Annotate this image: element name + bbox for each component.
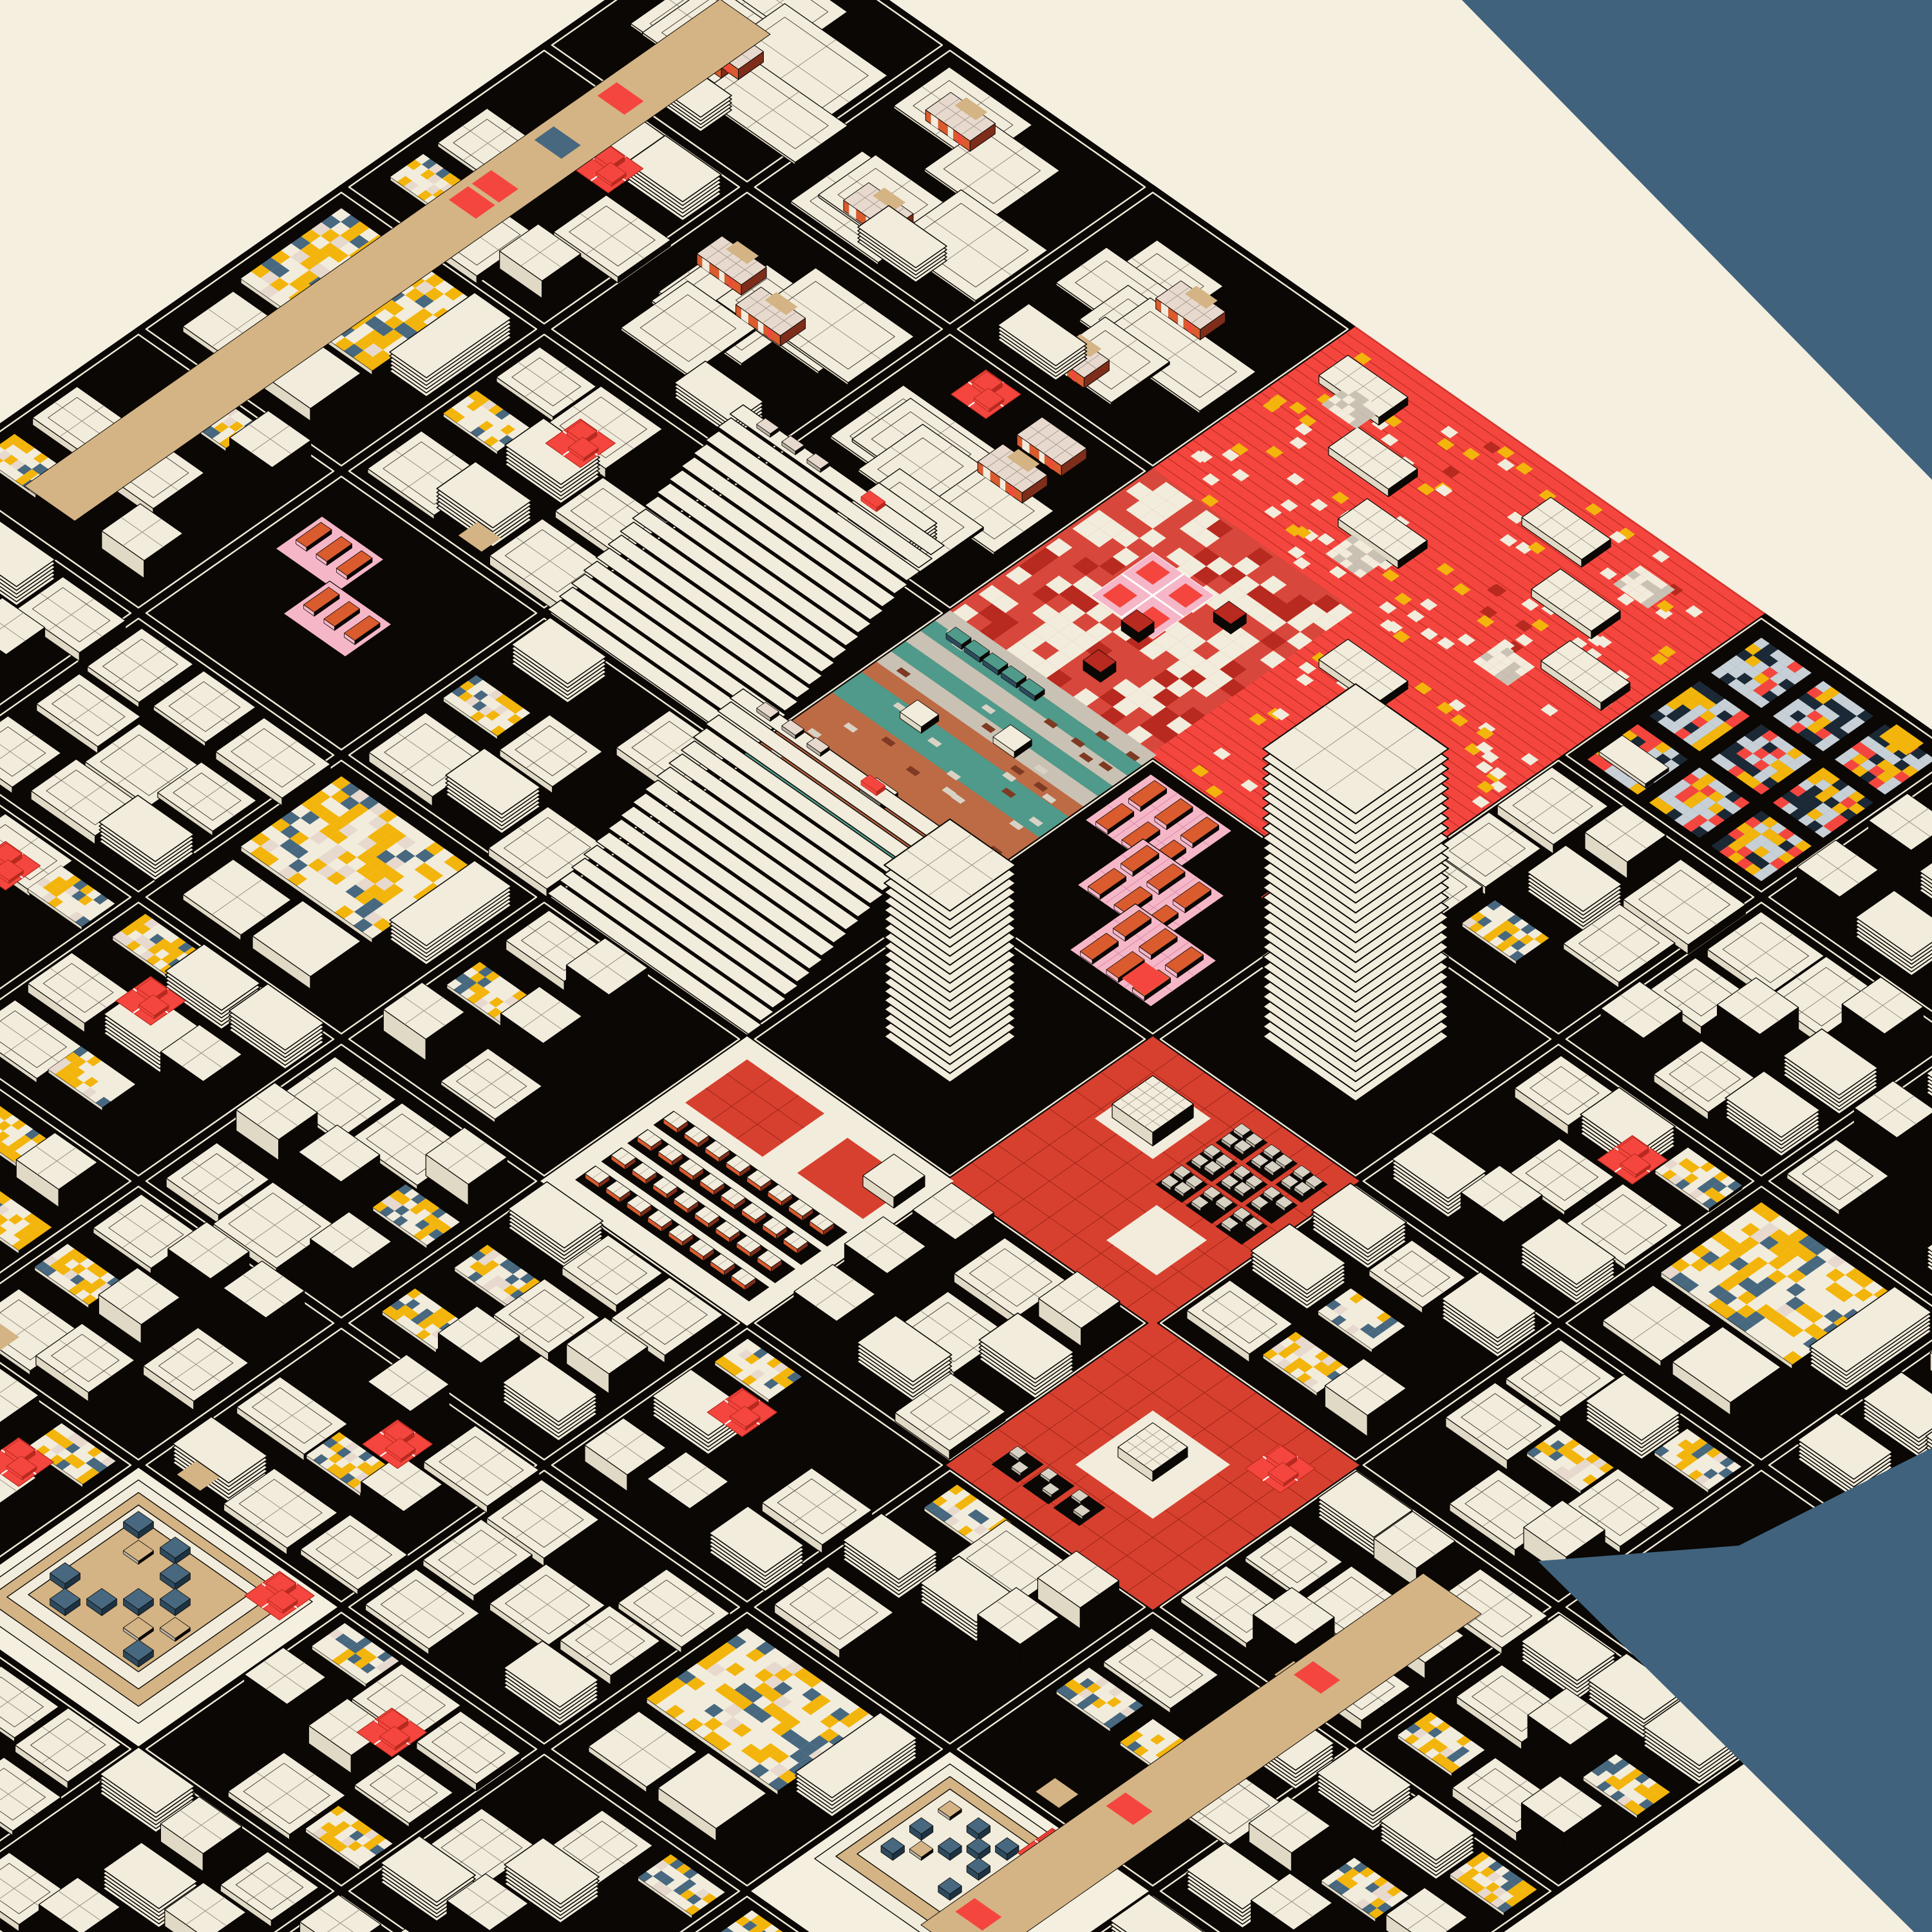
artwork	[0, 0, 1932, 1932]
generative-city-canvas	[0, 0, 1932, 1932]
district-tower-5-2	[1263, 684, 1448, 1101]
district-tower2-4-3	[884, 819, 1016, 1083]
